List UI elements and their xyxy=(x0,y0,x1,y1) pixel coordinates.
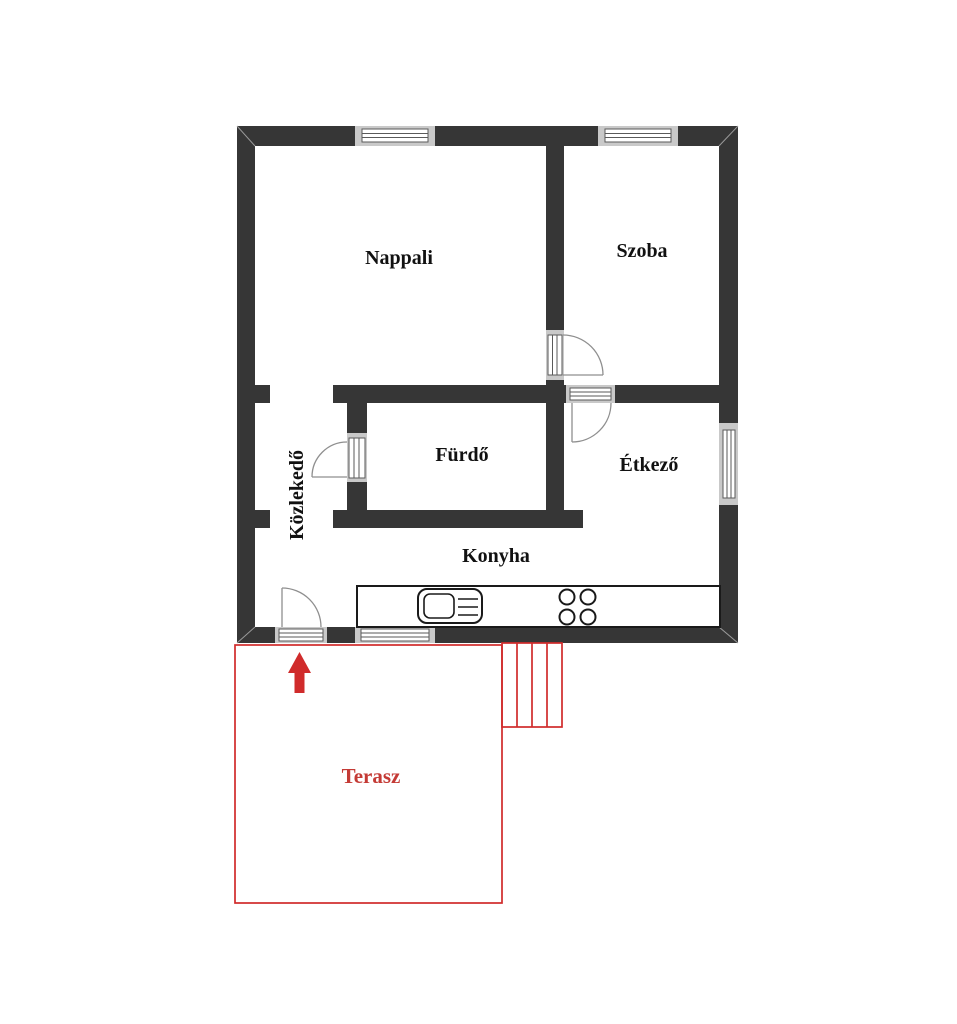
door-swing-icon xyxy=(282,588,321,627)
nappali-szoba-wall xyxy=(546,145,564,510)
window-etkezo xyxy=(719,423,738,505)
entrance-arrow-icon xyxy=(288,652,311,693)
door-kozlekedo-furdo xyxy=(312,433,367,482)
corridor-top-stub xyxy=(255,385,270,403)
furdo-bottom-wall xyxy=(333,510,583,528)
door-swing-icon xyxy=(563,335,603,375)
kitchen-counter xyxy=(357,586,720,627)
label-konyha: Konyha xyxy=(462,545,530,567)
corridor-bottom-stub xyxy=(255,510,270,528)
left-wall xyxy=(237,126,255,643)
label-furdo: Fürdő xyxy=(435,444,488,466)
label-szoba: Szoba xyxy=(616,240,667,262)
door-szoba-etkezo xyxy=(566,385,615,442)
door-nappali-szoba xyxy=(546,330,603,380)
door-swing-icon xyxy=(572,403,611,442)
label-kozlekedo: Közlekedő xyxy=(286,450,308,540)
sink-icon xyxy=(418,589,482,623)
right-wall xyxy=(719,126,738,643)
label-etkezo: Étkező xyxy=(620,453,679,476)
furdo-top-wall xyxy=(333,385,546,403)
label-nappali: Nappali xyxy=(365,247,433,269)
floor-plan-drawing: Nappali Szoba Fürdő Étkező Konyha Közlek… xyxy=(0,0,957,1024)
stairs-icon xyxy=(502,643,562,727)
counter-outline xyxy=(357,586,720,627)
label-terasz: Terasz xyxy=(342,764,401,788)
window-nappali xyxy=(355,126,435,146)
floor-plan-page: Nappali Szoba Fürdő Étkező Konyha Közlek… xyxy=(0,0,957,1024)
window-konyha xyxy=(355,627,435,643)
door-swing-icon xyxy=(312,442,347,477)
entrance-door xyxy=(275,588,327,643)
window-szoba xyxy=(598,126,678,146)
